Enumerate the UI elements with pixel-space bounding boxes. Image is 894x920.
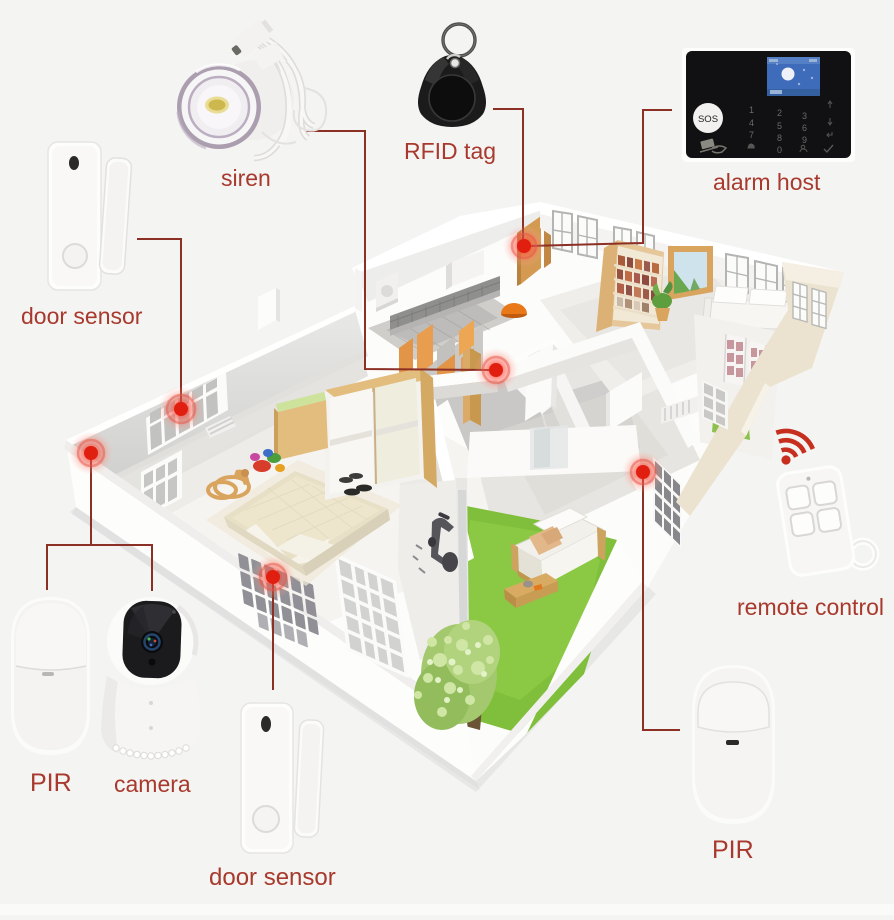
svg-text:8: 8 bbox=[777, 133, 782, 143]
svg-text:2: 2 bbox=[777, 108, 782, 118]
svg-text:4: 4 bbox=[749, 118, 754, 128]
svg-text:camera: camera bbox=[114, 771, 191, 797]
svg-text:3: 3 bbox=[802, 111, 807, 121]
svg-text:0: 0 bbox=[777, 145, 782, 155]
svg-text:SOS: SOS bbox=[698, 114, 718, 125]
svg-text:PIR: PIR bbox=[30, 769, 72, 797]
svg-text:9: 9 bbox=[802, 135, 807, 145]
svg-text:5: 5 bbox=[777, 121, 782, 131]
svg-text:door sensor: door sensor bbox=[209, 864, 336, 891]
svg-text:1: 1 bbox=[749, 105, 754, 115]
svg-text:7: 7 bbox=[749, 130, 754, 140]
svg-text:alarm host: alarm host bbox=[713, 169, 821, 195]
svg-text:6: 6 bbox=[802, 123, 807, 133]
svg-text:RFID tag: RFID tag bbox=[404, 138, 496, 164]
svg-text:siren: siren bbox=[221, 165, 271, 191]
svg-text:remote control: remote control bbox=[737, 594, 884, 620]
svg-text:door sensor: door sensor bbox=[21, 303, 143, 329]
svg-text:PIR: PIR bbox=[712, 836, 754, 864]
